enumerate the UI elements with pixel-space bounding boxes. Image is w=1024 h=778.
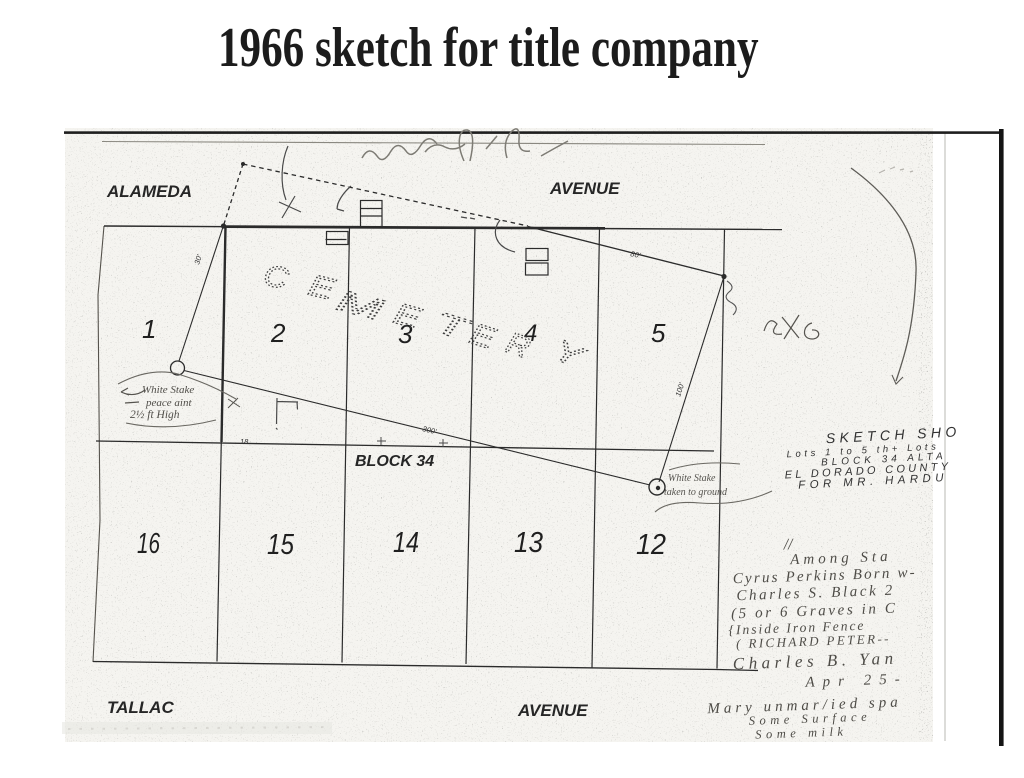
svg-text:2½ ft High: 2½ ft High xyxy=(130,409,180,421)
svg-text:16: 16 xyxy=(137,528,161,560)
svg-text:12: 12 xyxy=(636,529,666,561)
svg-text:13: 13 xyxy=(514,527,543,559)
svg-text:taken to ground: taken to ground xyxy=(664,487,728,498)
svg-text:1: 1 xyxy=(142,314,156,344)
svg-text:18: 18 xyxy=(240,437,249,446)
svg-text:White Stake: White Stake xyxy=(668,473,716,484)
svg-text:15: 15 xyxy=(267,529,295,561)
svg-text:5: 5 xyxy=(651,318,666,348)
svg-text:TALLAC: TALLAC xyxy=(107,698,174,717)
svg-text:14: 14 xyxy=(393,527,419,559)
svg-text:AVENUE: AVENUE xyxy=(517,701,588,720)
svg-text:White Stake: White Stake xyxy=(142,384,194,396)
svg-text:BLOCK 34: BLOCK 34 xyxy=(355,453,434,470)
svg-text:peace aint: peace aint xyxy=(145,397,192,409)
svg-text:AVENUE: AVENUE xyxy=(549,179,620,198)
svg-text:2: 2 xyxy=(270,318,286,348)
svg-text:ALAMEDA: ALAMEDA xyxy=(106,182,192,201)
